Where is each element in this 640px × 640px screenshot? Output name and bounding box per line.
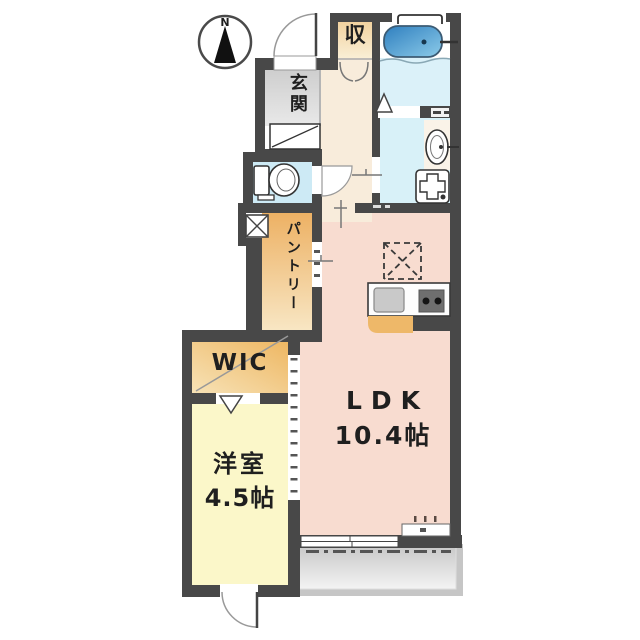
storage-room-label: 収 (336, 24, 374, 46)
kitchen-counter (368, 283, 450, 316)
entrance-room-label: 玄関 (287, 73, 306, 115)
floor-plan-drawing (0, 0, 640, 640)
pantry-opening-dash (314, 262, 320, 265)
western-door-opening (220, 584, 258, 598)
ldk-room-size: 10.4帖 (297, 423, 469, 449)
balcony-sliding-window (301, 536, 398, 547)
bathroom-window-slot (392, 12, 446, 23)
balcony-slab (299, 547, 456, 589)
western-room-size: 4.5帖 (176, 486, 304, 511)
compass-north-label: N (217, 17, 233, 29)
hall-floor (320, 58, 372, 222)
ldk-room-label: LDK (303, 388, 463, 414)
pipe-space-box (246, 215, 268, 237)
wall-vent-dash (373, 205, 381, 208)
washroom-window-dash (444, 111, 449, 114)
entrance-door-opening (274, 56, 316, 70)
washroom-window-dash (433, 111, 441, 114)
floor-plan-page: N 収 玄関 パントリー WIC 洋室 4.5帖 LDK 10.4帖 (0, 0, 640, 640)
shoe-cabinet (270, 124, 320, 149)
stove-burner (435, 298, 442, 305)
pantry-room-label: パントリー (284, 221, 299, 314)
kitchen-cabinet-front (368, 316, 413, 333)
toilet-door-opening (312, 166, 322, 194)
stove-burner (423, 298, 430, 305)
washing-machine-pan (416, 170, 449, 203)
pantry-opening-dash (314, 250, 320, 253)
entrance-door-arc (274, 14, 316, 56)
pantry-opening-dash (314, 274, 320, 277)
balcony (294, 544, 463, 596)
western-room-label: 洋室 (180, 452, 300, 477)
wic-room-label: WIC (192, 351, 288, 375)
kitchen-sink (374, 288, 404, 312)
bathroom-floor (380, 58, 450, 108)
wall-vent-dash (385, 205, 390, 208)
